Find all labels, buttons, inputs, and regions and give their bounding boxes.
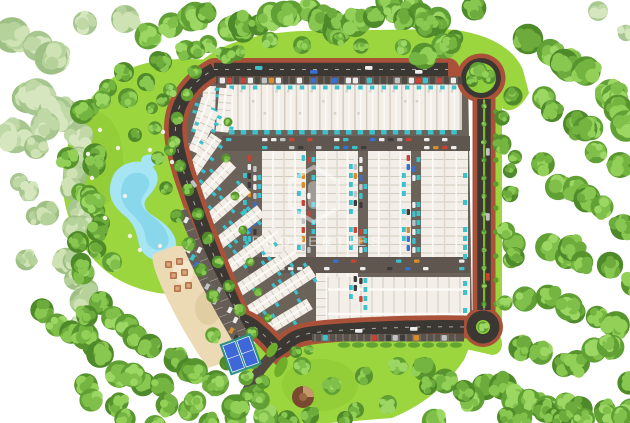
svg-text:PROPERTIES: PROPERTIES	[252, 234, 385, 249]
